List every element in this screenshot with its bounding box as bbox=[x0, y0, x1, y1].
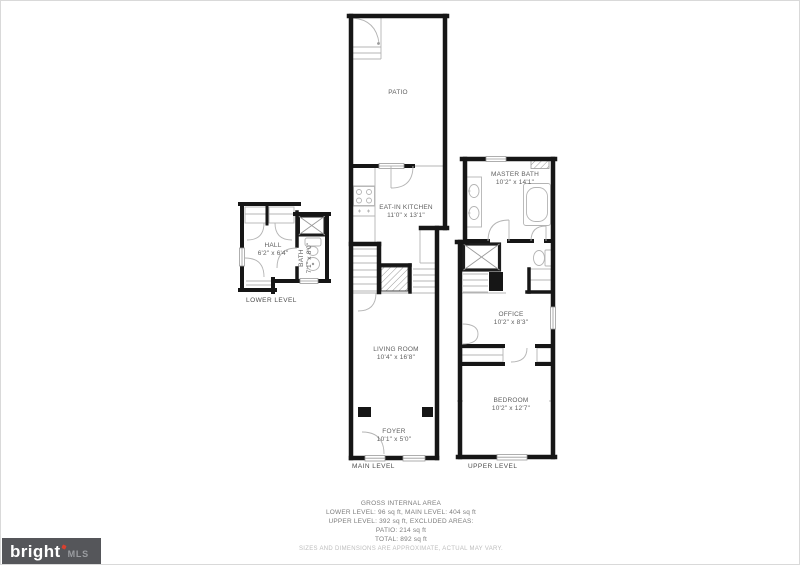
summary-line: TOTAL: 892 sq ft bbox=[251, 535, 551, 544]
upper-level-windows bbox=[486, 157, 556, 461]
upper-level-interior-lines bbox=[457, 177, 555, 401]
main-level-walls bbox=[349, 16, 447, 458]
main-stairs-right bbox=[413, 269, 435, 287]
stair-wall bbox=[489, 272, 503, 291]
main-level-interior-lines bbox=[351, 16, 443, 293]
summary-title: GROSS INTERNAL AREA bbox=[251, 499, 551, 508]
summary-line: UPPER LEVEL: 392 sq ft, EXCLUDED AREAS: bbox=[251, 517, 551, 526]
stove bbox=[354, 187, 375, 213]
floorplan-page: PATIO EAT-IN KITCHEN 11'0" x 13'1" LIVIN… bbox=[0, 0, 800, 565]
summary-disclaimer: SIZES AND DIMENSIONS ARE APPROXIMATE, AC… bbox=[251, 545, 551, 554]
area-summary: GROSS INTERNAL AREA LOWER LEVEL: 96 sq f… bbox=[251, 499, 551, 554]
lower-level-windows bbox=[240, 248, 319, 284]
closet-upper-right bbox=[530, 269, 551, 291]
main-stairs-left bbox=[353, 249, 377, 291]
toilet bbox=[534, 250, 553, 266]
closet-left bbox=[462, 348, 503, 362]
main-level-plan bbox=[349, 16, 447, 461]
upper-stairs bbox=[463, 274, 488, 292]
upper-level-walls bbox=[457, 159, 555, 457]
bathtub bbox=[524, 184, 551, 226]
vanity-sinks bbox=[467, 177, 482, 227]
upper-level-plan bbox=[457, 157, 556, 461]
summary-line: LOWER LEVEL: 96 sq ft, MAIN LEVEL: 404 s… bbox=[251, 508, 551, 517]
patio-stairs bbox=[353, 16, 381, 59]
shower-upper bbox=[464, 244, 500, 270]
stair-void bbox=[381, 267, 408, 291]
main-level-windows bbox=[365, 164, 425, 462]
closet-right bbox=[537, 348, 551, 362]
logo-accent-mark bbox=[61, 544, 66, 549]
wall-stub bbox=[358, 407, 371, 417]
shower-lower bbox=[299, 216, 326, 235]
entry-steps bbox=[246, 281, 271, 289]
lower-level-plan bbox=[240, 204, 330, 292]
floor-plan-canvas bbox=[1, 1, 800, 565]
logo-suffix-text: MLS bbox=[68, 549, 89, 559]
brightmls-logo: bright MLS bbox=[2, 538, 101, 565]
lower-level-doors bbox=[245, 223, 297, 277]
wall-stub bbox=[422, 407, 433, 417]
hall-closets bbox=[245, 207, 294, 223]
summary-line: PATIO: 214 sq ft bbox=[251, 526, 551, 535]
lower-bath-fixtures bbox=[305, 238, 321, 271]
logo-brand-text: bright bbox=[10, 543, 61, 560]
